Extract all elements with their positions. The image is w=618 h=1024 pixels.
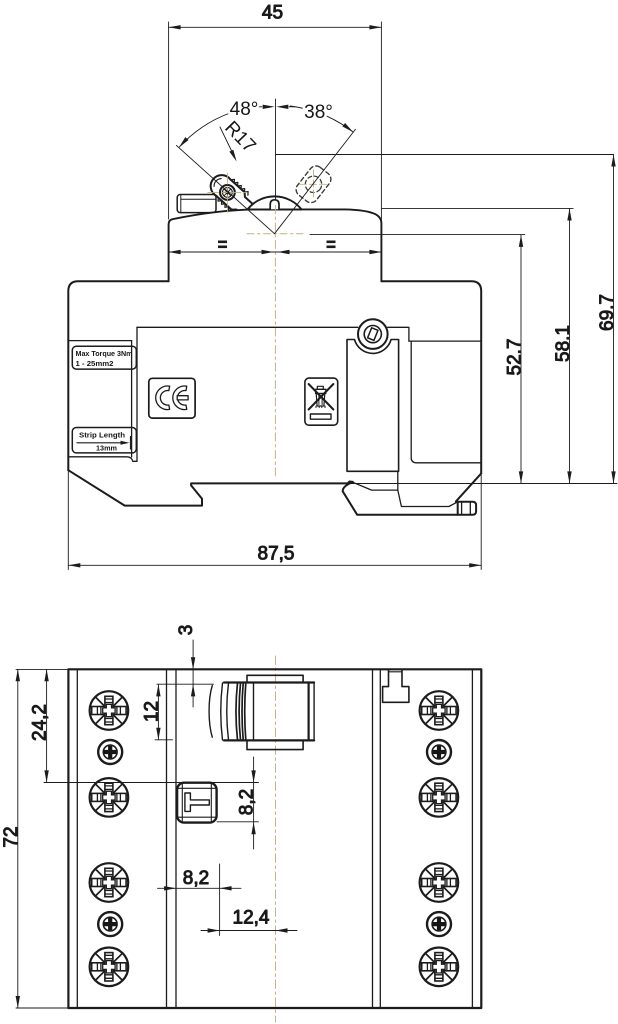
svg-text:8,2: 8,2	[183, 868, 209, 889]
svg-text:Max Torque 3Nm: Max Torque 3Nm	[76, 349, 133, 358]
svg-text:52.7: 52.7	[505, 339, 526, 376]
svg-text:24,2: 24,2	[29, 704, 50, 741]
svg-text:12: 12	[141, 701, 162, 722]
svg-text:38°: 38°	[304, 102, 333, 123]
svg-text:13mm: 13mm	[96, 444, 118, 453]
svg-text:Strip Length: Strip Length	[79, 431, 125, 440]
svg-text:R17: R17	[220, 117, 259, 157]
svg-text:12,4: 12,4	[233, 908, 270, 929]
svg-text:45: 45	[262, 3, 283, 24]
svg-text:3: 3	[176, 625, 197, 636]
svg-text:87,5: 87,5	[258, 544, 295, 565]
svg-text:69.7: 69.7	[597, 294, 618, 331]
svg-text:58.1: 58.1	[553, 325, 574, 362]
svg-text:8,2: 8,2	[237, 789, 258, 815]
svg-text:48°: 48°	[230, 99, 259, 120]
svg-text:1 - 25mm2: 1 - 25mm2	[76, 359, 114, 368]
svg-text:72: 72	[1, 826, 22, 847]
